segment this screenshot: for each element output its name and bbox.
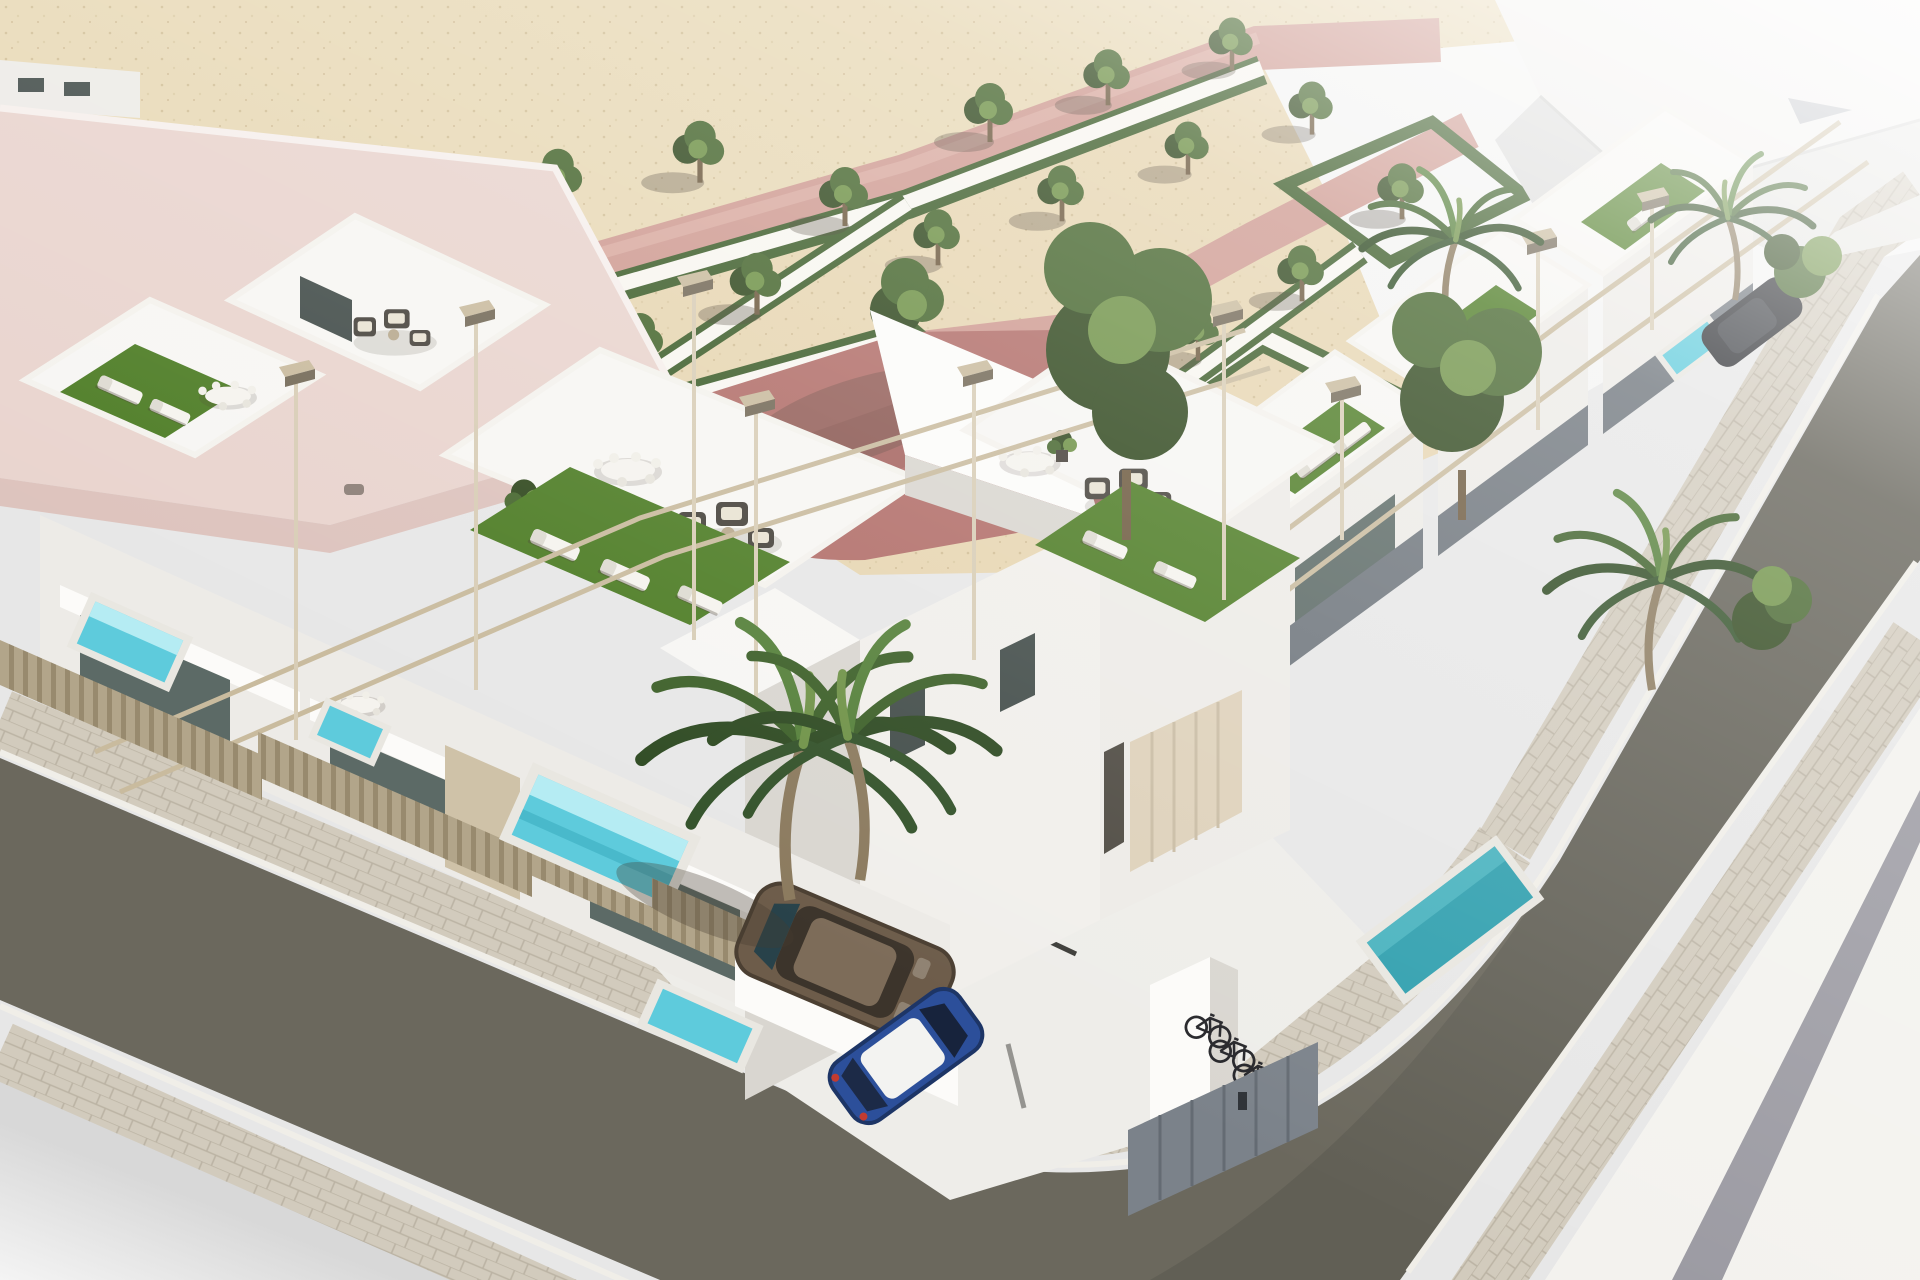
architectural-rendering: Aerial 3D render of a modern white resid… xyxy=(0,0,1920,1280)
light-wash-overlay xyxy=(0,0,1920,1280)
render-canvas: Aerial 3D render of a modern white resid… xyxy=(0,0,1920,1280)
